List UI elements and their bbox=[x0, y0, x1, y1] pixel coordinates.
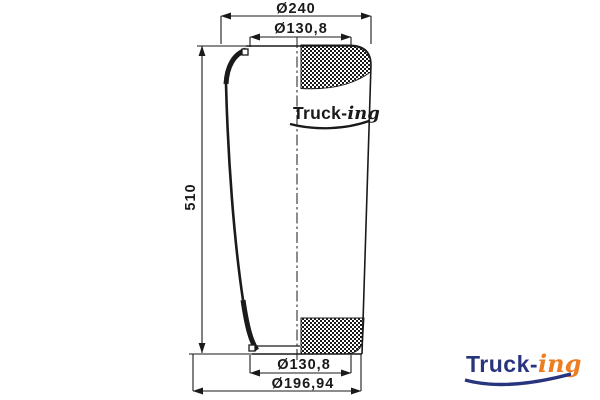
top-bead-wire bbox=[242, 49, 248, 55]
bottom-bead-wire bbox=[249, 345, 255, 351]
brand-logo-script: ing bbox=[538, 349, 581, 378]
watermark-logo: Truck-ing bbox=[290, 103, 380, 128]
top-crimp-hatch bbox=[301, 45, 371, 89]
brand-logo-text: Truck-ing bbox=[466, 349, 581, 378]
bottom-crimp-hatch bbox=[301, 318, 364, 354]
drawing-canvas: Ø240 Ø130,8 510 Ø130,8 Ø196,94 Truck-ing… bbox=[0, 0, 600, 400]
left-profile-wall bbox=[226, 84, 243, 300]
air-spring-technical-drawing: Ø240 Ø130,8 510 Ø130,8 Ø196,94 Truck-ing… bbox=[0, 0, 600, 400]
dim-label-outer-bottom: Ø196,94 bbox=[272, 376, 335, 392]
brand-logo-bold: Truck- bbox=[466, 351, 538, 377]
left-profile-bottom-hook bbox=[243, 300, 257, 350]
bellows-top-and-right-edge bbox=[246, 46, 371, 354]
dim-label-outer-top: Ø240 bbox=[276, 1, 315, 17]
brand-logo: Truck-ing bbox=[465, 349, 581, 384]
bellows-body bbox=[226, 37, 371, 363]
dim-label-inner-bottom: Ø130,8 bbox=[277, 357, 331, 373]
watermark-logo-bold: Truck- bbox=[293, 103, 347, 123]
watermark-logo-script: ing bbox=[347, 103, 380, 124]
dim-label-inner-top: Ø130,8 bbox=[274, 21, 328, 37]
dim-label-height: 510 bbox=[183, 183, 199, 210]
